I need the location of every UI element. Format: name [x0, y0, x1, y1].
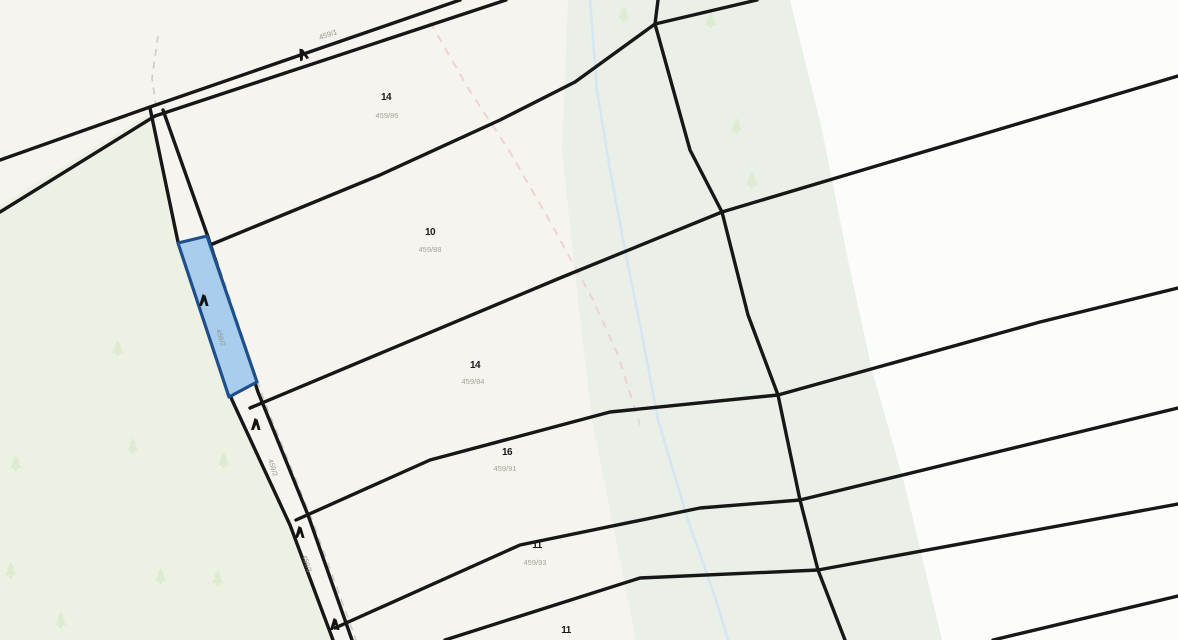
parcel-number-label: 459/86: [376, 111, 399, 120]
parcel-number-label: 459/93: [524, 558, 547, 567]
cadastral-map-canvas[interactable]: 14459/8610459/8814459/8416459/9111459/93…: [0, 0, 1178, 640]
parcel-id-label: 14: [381, 92, 392, 103]
parcel-id-label: 14: [470, 360, 481, 371]
parcel-number-label: 459/84: [462, 377, 485, 386]
parcel-id-label: 11: [561, 625, 572, 636]
parcel-number-label: 459/88: [419, 245, 442, 254]
parcel-id-label: 16: [502, 447, 513, 458]
parcel-id-label: 10: [425, 227, 436, 238]
parcel-number-label: 459/91: [494, 464, 517, 473]
map-viewport[interactable]: 14459/8610459/8814459/8416459/9111459/93…: [0, 0, 1178, 640]
parcel-id-label: 11: [532, 540, 543, 551]
